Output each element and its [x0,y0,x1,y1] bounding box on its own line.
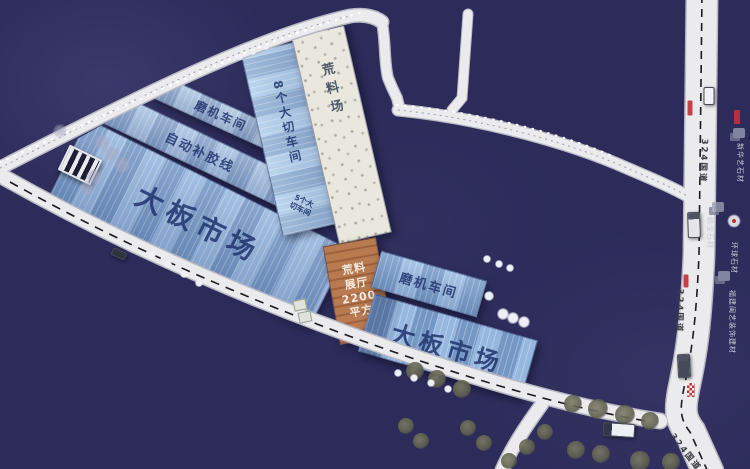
car-southwest [111,247,128,260]
gray-tree-dot [80,181,94,195]
roadside-company-label: 鹏宝石材 [705,217,715,249]
company-logo-blob [733,128,745,138]
tree [460,420,476,436]
truck-west [603,422,636,438]
road-sign-white [704,87,715,105]
gray-tree-dot [53,124,67,138]
truck-mid [677,354,691,379]
tree [476,435,492,451]
tree [630,451,650,469]
highway-red-marker [684,275,689,288]
highway-red-marker [687,383,695,397]
tree [501,453,517,469]
white-tree-dot [495,260,503,268]
company-logo-blob [712,202,724,212]
white-tree-dot [427,379,435,387]
tree [588,399,608,419]
annex-hut [292,298,307,311]
white-tree-dot [164,260,172,268]
gray-tree-dot [114,157,130,173]
tree [537,424,553,440]
highway-324-label: 324国道 [673,288,687,333]
roadside-company-label: 新华艺石材 [735,143,745,183]
highway-red-marker [734,110,740,124]
company-circle-logo [728,215,741,228]
tree [567,441,585,459]
white-tree-dot [483,255,491,263]
white-tree-dot [394,369,402,377]
white-tree-dot [506,264,514,272]
tree [453,380,471,398]
site-map: 磨机车间 自动补胶线 大板市场 8个大切车间 5个大 切车间 荒料场 荒料 展厅… [0,0,750,469]
white-tree-dot [237,54,243,60]
white-tree-dot [250,49,256,55]
white-tree-dot [518,316,530,328]
tree [641,412,659,430]
tree [398,418,414,434]
white-tree-dot [263,44,269,50]
tree [519,439,535,455]
annex-hut [297,310,312,323]
white-tree-dot [195,279,203,287]
roadside-company-label: 环球石材 [729,242,739,274]
decoration-layer: 324国道324国道324国道新华艺石材鹏宝石材环球石材福建闽艺装饰建材 [0,0,750,469]
white-tree-dot [484,291,494,301]
tree [413,433,429,449]
truck-north [687,212,701,238]
white-tree-dot [180,270,188,278]
white-tree-dot [410,374,418,382]
highway-324-label: 324国道 [697,138,711,183]
tree [564,395,582,413]
tree [662,453,680,469]
tree [592,445,610,463]
highway-red-marker [688,101,693,116]
white-tree-dot [444,385,452,393]
roadside-company-label: 福建闽艺装饰建材 [727,290,737,354]
white-tree-dot [148,251,156,259]
